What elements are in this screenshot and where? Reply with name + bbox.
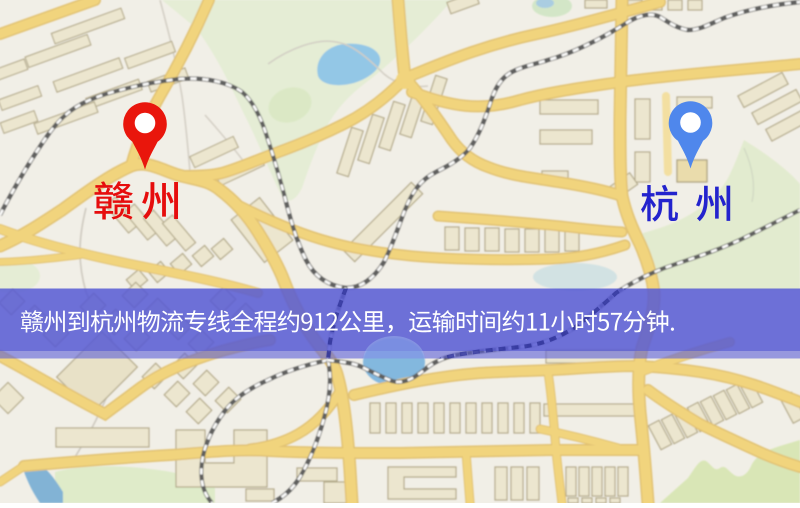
svg-text:赣州到杭州物流专线全程约912公里，运输时间约11小时57分: 赣州到杭州物流专线全程约912公里，运输时间约11小时57分钟. bbox=[20, 303, 675, 338]
svg-text:杭州: 杭州 bbox=[640, 174, 750, 230]
svg-text:赣州: 赣州 bbox=[93, 168, 189, 228]
